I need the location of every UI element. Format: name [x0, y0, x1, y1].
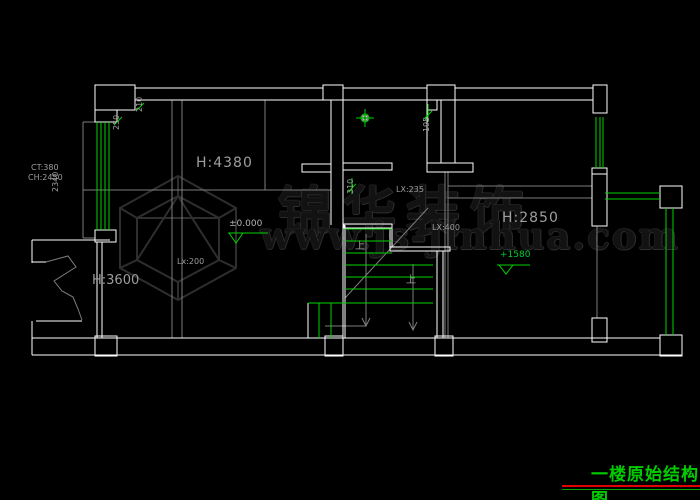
floorplan-drawing	[0, 0, 700, 500]
room-height-right-label: H:2850	[502, 211, 559, 225]
room-height-living-label: H:4380	[196, 156, 253, 170]
dim-195-label: 195	[423, 117, 431, 132]
elevation-landing-label: +1580	[500, 251, 530, 260]
room-height-left-label: H:3600	[92, 274, 139, 287]
stair-up-label-2: 上	[406, 276, 416, 286]
point-marker-icon	[356, 109, 374, 127]
dim-210-label: 210	[136, 97, 144, 112]
walls-layer	[32, 85, 682, 356]
elevation-ground-label: ±0.000	[229, 220, 262, 229]
beam-lx400-label: LX:400	[432, 224, 460, 232]
drawing-title: 一楼原始结构图	[591, 460, 700, 500]
elevation-marker-ground-icon	[228, 233, 268, 243]
windows-stairs-layer	[97, 103, 673, 338]
dim-2340-label: 2340	[52, 172, 60, 192]
beam-lx200-label: Lx:200	[177, 258, 204, 266]
title-underline-green	[562, 489, 700, 490]
dim-250-label: 250	[113, 115, 121, 130]
stair-up-label-1: 上	[355, 242, 365, 252]
cad-floorplan-canvas: 锦华装饰 www.js-jinhua.com	[0, 0, 700, 500]
beam-lx235-label: LX:235	[396, 186, 424, 194]
title-underline-red	[562, 485, 700, 487]
dim-310-label: 310	[347, 179, 355, 194]
elevation-marker-landing-icon	[497, 265, 530, 274]
